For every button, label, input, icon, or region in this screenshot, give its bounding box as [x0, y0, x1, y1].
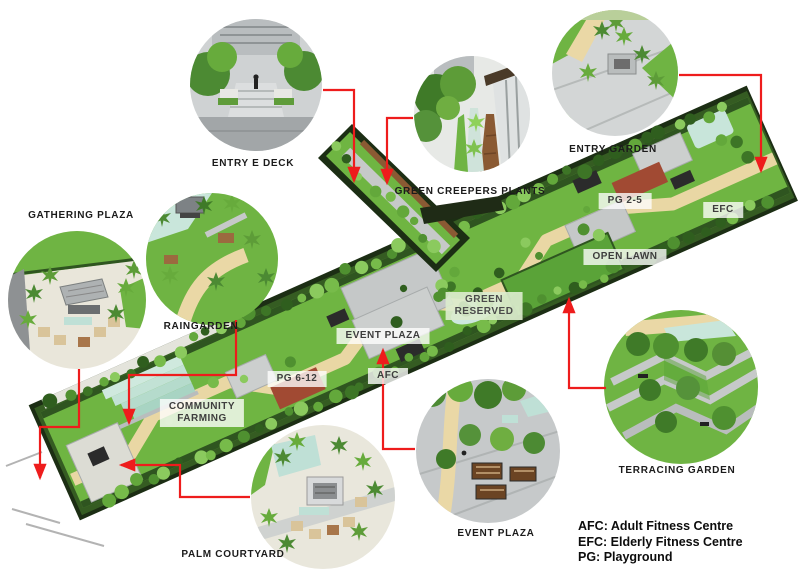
masterplan-diagram: ENTRY E DECK GREEN CREEPERS PLANTS ENTRY… [0, 0, 800, 569]
plan-label-afc: AFC [368, 368, 408, 384]
plan-label-community-farming-line2: FARMING [169, 413, 235, 425]
gathering-plaza-photo [8, 231, 146, 369]
plan-label-green-reserved: GREEN RESERVED [446, 292, 523, 320]
caption-entry-e-deck: ENTRY E DECK [212, 158, 294, 169]
caption-entry-garden: ENTRY GARDEN [569, 144, 657, 155]
plan-label-pg-2-5: PG 2-5 [599, 193, 652, 209]
caption-terracing-garden: TERRACING GARDEN [619, 465, 736, 476]
event-plaza-photo [416, 379, 560, 523]
caption-green-creepers: GREEN CREEPERS PLANTS [395, 186, 546, 197]
plan-label-community-farming: COMMUNITY FARMING [160, 399, 244, 427]
callout-entry-garden [552, 10, 678, 136]
plan-label-open-lawn: OPEN LAWN [583, 249, 666, 265]
terracing-garden-photo [604, 310, 758, 464]
caption-event-plaza: EVENT PLAZA [457, 528, 534, 539]
callout-palm-courtyard [251, 425, 395, 569]
caption-gathering-plaza: GATHERING PLAZA [28, 210, 134, 221]
plan-label-event-plaza: EVENT PLAZA [337, 328, 430, 344]
legend: AFC: Adult Fitness Centre EFC: Elderly F… [578, 519, 743, 566]
raingarden-photo [146, 193, 278, 325]
callout-raingarden [146, 193, 278, 325]
caption-raingarden: RAINGARDEN [164, 321, 239, 332]
callout-green-creepers [414, 56, 530, 172]
callout-entry-e-deck [190, 19, 322, 151]
legend-pg: PG: Playground [578, 550, 743, 566]
entry-garden-photo [552, 10, 678, 136]
plan-label-green-reserved-line2: RESERVED [455, 306, 514, 318]
plan-label-community-farming-line1: COMMUNITY [169, 401, 235, 413]
callout-event-plaza [416, 379, 560, 523]
callout-gathering-plaza [8, 231, 146, 369]
palm-courtyard-photo [251, 425, 395, 569]
callout-terracing-garden [604, 310, 758, 464]
plan-label-pg-6-12: PG 6-12 [268, 371, 327, 387]
plan-label-green-reserved-line1: GREEN [455, 294, 514, 306]
entry-e-deck-photo [190, 19, 322, 151]
legend-efc: EFC: Elderly Fitness Centre [578, 535, 743, 551]
caption-palm-courtyard: PALM COURTYARD [181, 549, 284, 560]
legend-afc: AFC: Adult Fitness Centre [578, 519, 743, 535]
plan-label-efc: EFC [703, 202, 743, 218]
green-creepers-photo [414, 56, 530, 172]
